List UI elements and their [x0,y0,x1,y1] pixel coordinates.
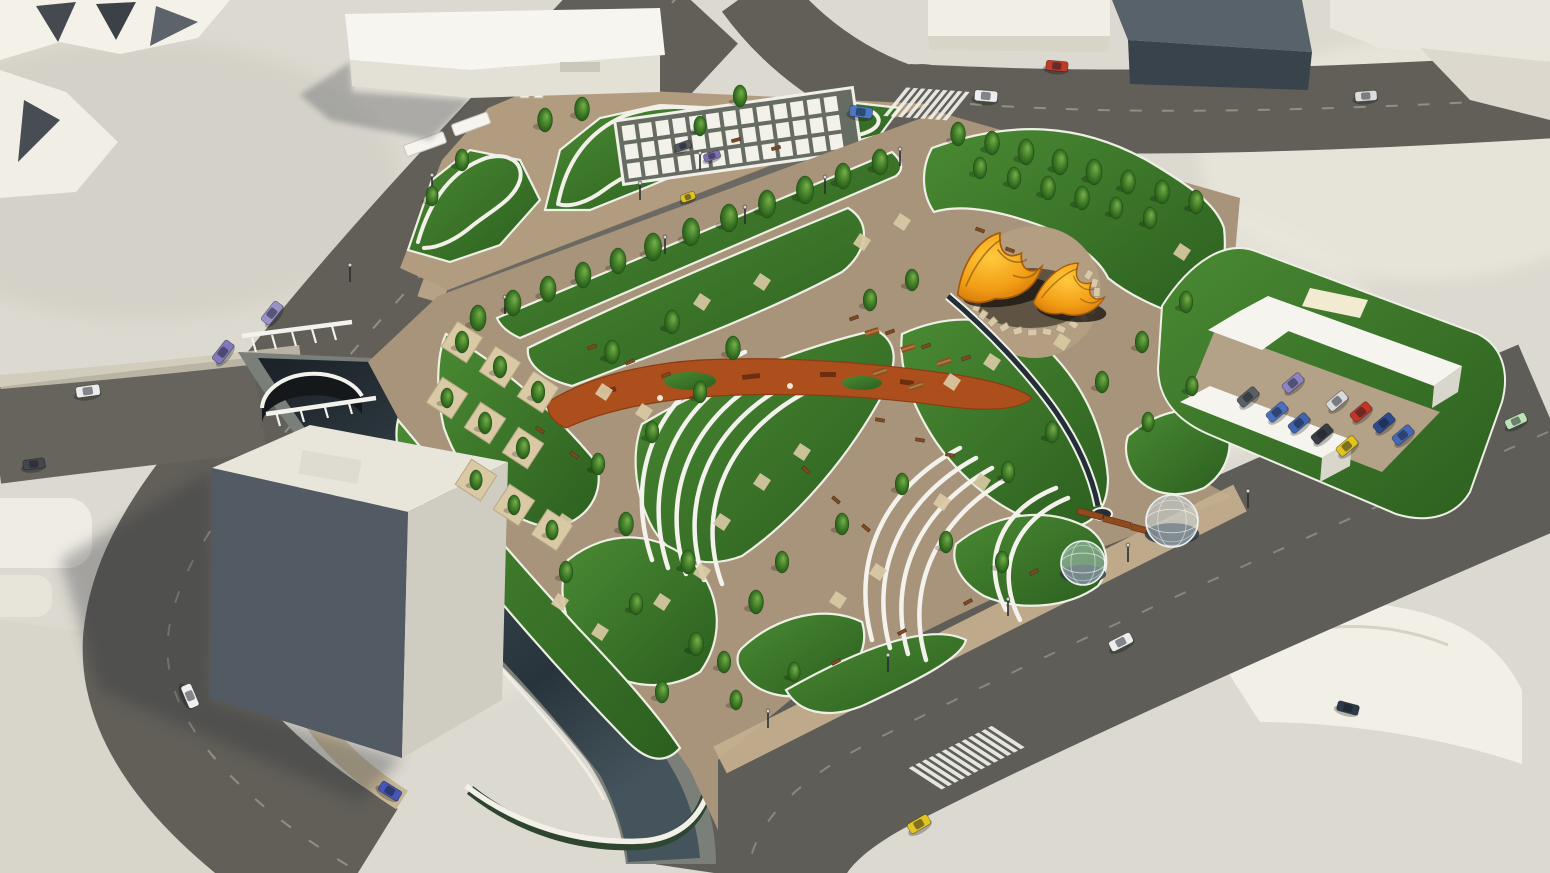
playground-lawn-hole [842,376,882,390]
building-detail [560,62,600,72]
rendered-image [0,0,1550,873]
glass-dome [1145,495,1200,547]
building-north-small-face [928,36,1110,52]
park-masterplan-render [0,0,1550,873]
playground-lawn-hole [664,372,716,390]
stone-block [1042,328,1052,336]
stone-block [1093,287,1100,296]
plaza-pad [0,575,52,617]
building-northeast-dark [1112,0,1312,90]
stone-block [1028,329,1037,336]
glass-dome [1060,541,1106,585]
building-north-small [928,0,1110,38]
